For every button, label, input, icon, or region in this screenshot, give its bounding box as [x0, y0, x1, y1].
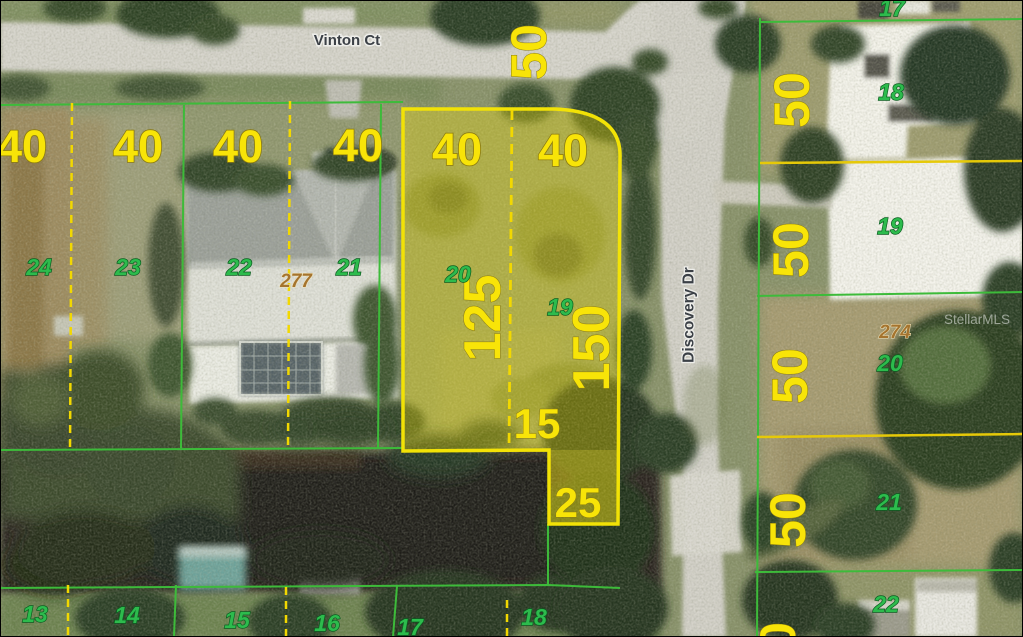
svg-text:19: 19 — [547, 294, 573, 320]
svg-text:13: 13 — [22, 601, 48, 627]
svg-text:18: 18 — [878, 79, 904, 105]
svg-text:17: 17 — [879, 0, 906, 21]
svg-text:50: 50 — [764, 72, 820, 128]
svg-text:21: 21 — [875, 489, 902, 515]
svg-text:18: 18 — [521, 604, 547, 630]
svg-text:17: 17 — [397, 614, 424, 637]
svg-text:50: 50 — [762, 348, 818, 404]
svg-text:15: 15 — [514, 400, 561, 447]
svg-text:19: 19 — [877, 213, 903, 239]
svg-text:15: 15 — [224, 607, 251, 633]
svg-text:40: 40 — [213, 121, 263, 172]
svg-text:Vinton Ct: Vinton Ct — [314, 32, 380, 49]
svg-text:14: 14 — [114, 602, 140, 628]
svg-text:125: 125 — [454, 275, 512, 362]
svg-text:23: 23 — [114, 254, 141, 280]
svg-text:20: 20 — [876, 350, 903, 376]
svg-text:20: 20 — [444, 261, 471, 287]
svg-text:40: 40 — [538, 125, 588, 176]
svg-text:22: 22 — [872, 591, 899, 617]
svg-text:50: 50 — [501, 24, 557, 80]
svg-text:16: 16 — [314, 610, 340, 636]
svg-text:50: 50 — [760, 492, 816, 548]
svg-text:Discovery Dr: Discovery Dr — [681, 267, 698, 363]
svg-text:40: 40 — [0, 121, 47, 172]
svg-text:40: 40 — [113, 121, 163, 172]
svg-text:StellarMLS: StellarMLS — [944, 312, 1010, 327]
svg-text:40: 40 — [333, 120, 383, 171]
svg-text:25: 25 — [555, 479, 602, 526]
svg-text:50: 50 — [763, 222, 819, 278]
svg-text:24: 24 — [25, 254, 52, 280]
svg-text:22: 22 — [225, 254, 252, 280]
svg-text:50: 50 — [750, 622, 806, 637]
svg-text:274: 274 — [878, 322, 911, 343]
svg-text:40: 40 — [432, 124, 482, 175]
svg-text:21: 21 — [335, 254, 362, 280]
svg-text:277: 277 — [279, 271, 313, 292]
